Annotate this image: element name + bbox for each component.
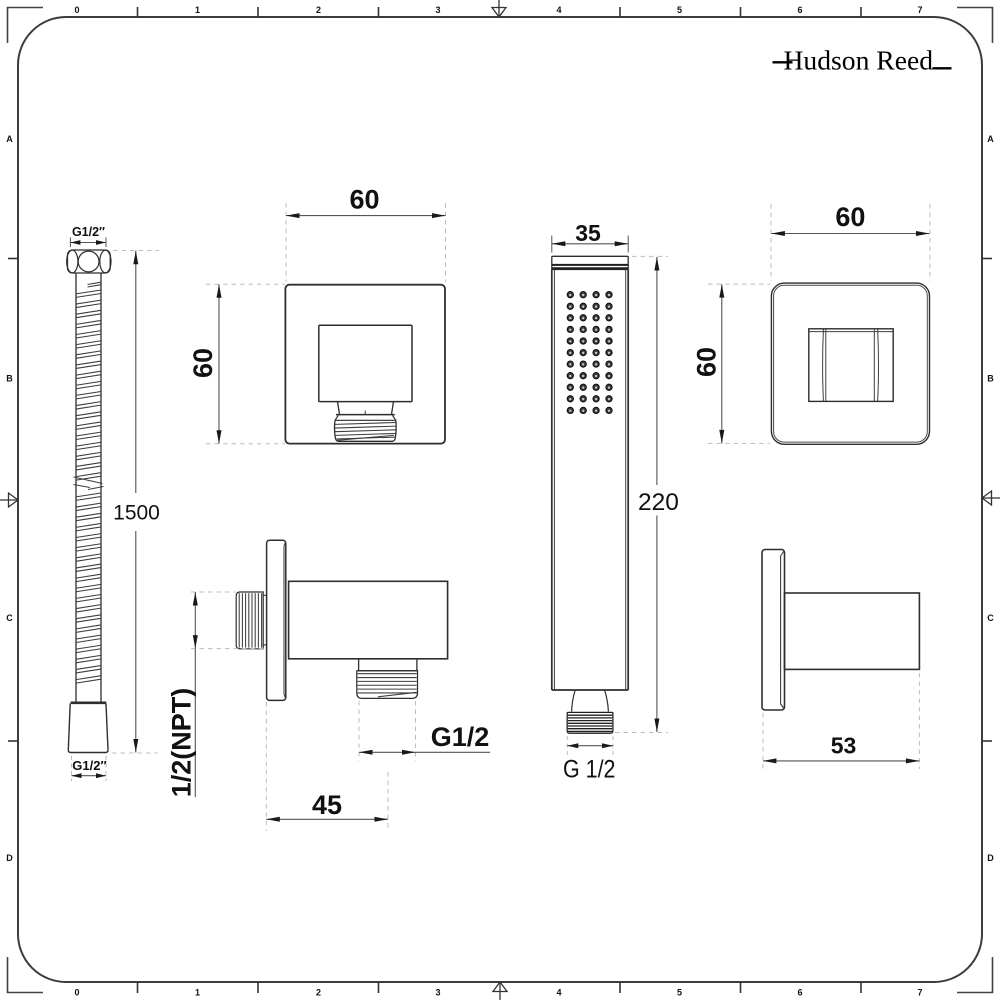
svg-text:C: C [6, 613, 13, 623]
svg-text:2: 2 [316, 988, 321, 998]
svg-text:G1/2″: G1/2″ [72, 225, 105, 239]
svg-text:3: 3 [435, 5, 440, 15]
svg-text:G1/2: G1/2 [431, 722, 490, 752]
svg-text:35: 35 [575, 220, 601, 246]
svg-text:B: B [6, 374, 13, 384]
svg-text:6: 6 [797, 988, 802, 998]
svg-text:Hudson Reed: Hudson Reed [784, 46, 934, 76]
svg-text:A: A [987, 134, 994, 144]
svg-text:7: 7 [917, 988, 922, 998]
svg-text:1/2(NPT): 1/2(NPT) [167, 688, 197, 798]
svg-text:C: C [987, 613, 994, 623]
svg-text:53: 53 [831, 733, 857, 759]
svg-text:0: 0 [74, 988, 79, 998]
svg-text:3: 3 [435, 988, 440, 998]
svg-text:1: 1 [195, 988, 200, 998]
svg-text:60: 60 [692, 347, 722, 377]
svg-text:7: 7 [917, 5, 922, 15]
svg-text:B: B [987, 374, 994, 384]
svg-text:60: 60 [188, 348, 218, 378]
svg-text:G1/2″: G1/2″ [72, 758, 106, 773]
svg-text:60: 60 [835, 202, 865, 232]
svg-text:1: 1 [195, 5, 200, 15]
svg-text:0: 0 [74, 5, 79, 15]
svg-text:G 1/2: G 1/2 [563, 756, 616, 784]
svg-text:60: 60 [349, 185, 379, 215]
svg-text:4: 4 [556, 5, 561, 15]
svg-text:2: 2 [316, 5, 321, 15]
svg-text:D: D [6, 853, 13, 863]
svg-text:4: 4 [556, 988, 561, 998]
svg-text:5: 5 [677, 5, 682, 15]
svg-text:6: 6 [797, 5, 802, 15]
svg-text:45: 45 [312, 790, 342, 820]
svg-text:5: 5 [677, 988, 682, 998]
svg-text:1500: 1500 [113, 502, 160, 525]
svg-text:220: 220 [638, 489, 679, 516]
svg-text:A: A [6, 134, 13, 144]
svg-text:D: D [987, 853, 994, 863]
